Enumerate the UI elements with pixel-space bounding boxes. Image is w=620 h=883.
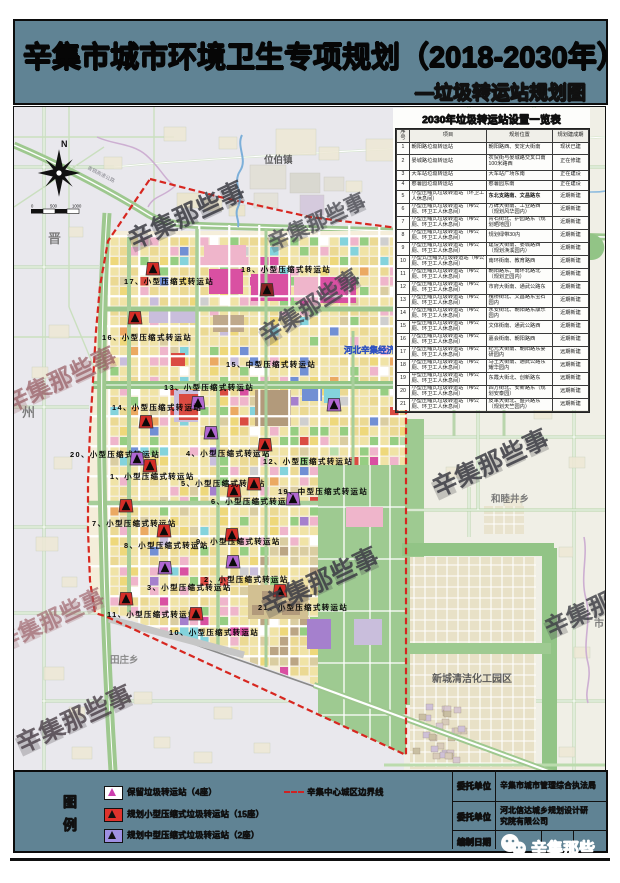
svg-text:18、小型压缩式转运站: 18、小型压缩式转运站: [241, 265, 331, 274]
svg-text:15、中型压缩式转运站: 15、中型压缩式转运站: [226, 360, 316, 369]
svg-text:12、小型压缩式转运站: 12、小型压缩式转运站: [263, 457, 353, 466]
svg-text:9、小型压缩式转运站: 9、小型压缩式转运站: [196, 537, 281, 546]
svg-text:和睦井乡: 和睦井乡: [491, 493, 529, 505]
svg-text:6、小型压缩式转运站: 6、小型压缩式转运站: [211, 497, 296, 506]
svg-text:17、小型压缩式转运站: 17、小型压缩式转运站: [124, 277, 214, 286]
svg-text:16、小型压缩式转运站: 16、小型压缩式转运站: [102, 333, 192, 342]
svg-text:2、小型压缩式转运站: 2、小型压缩式转运站: [204, 575, 289, 584]
svg-text:10、小型压缩式转运站: 10、小型压缩式转运站: [169, 628, 259, 637]
svg-text:3、小型压缩式转运站: 3、小型压缩式转运站: [147, 583, 232, 592]
svg-text:N: N: [61, 139, 68, 149]
svg-text:晋: 晋: [48, 231, 61, 246]
svg-text:田庄乡: 田庄乡: [110, 654, 139, 666]
svg-text:14、小型压缩式转运站: 14、小型压缩式转运站: [112, 403, 202, 412]
svg-text:位伯镇: 位伯镇: [264, 154, 293, 166]
svg-text:河北辛集经济: 河北辛集经济: [344, 345, 396, 355]
svg-text:19、中型压缩式转运站: 19、中型压缩式转运站: [278, 487, 368, 496]
svg-text:500: 500: [50, 204, 58, 209]
svg-text:1000: 1000: [72, 204, 82, 209]
svg-text:11、小型压缩式转运站: 11、小型压缩式转运站: [107, 610, 197, 619]
svg-text:20、小型压缩式转运站: 20、小型压缩式转运站: [70, 450, 160, 459]
svg-text:新城清洁化工园区: 新城清洁化工园区: [432, 672, 512, 685]
svg-text:13、小型压缩式转运站: 13、小型压缩式转运站: [164, 383, 254, 392]
